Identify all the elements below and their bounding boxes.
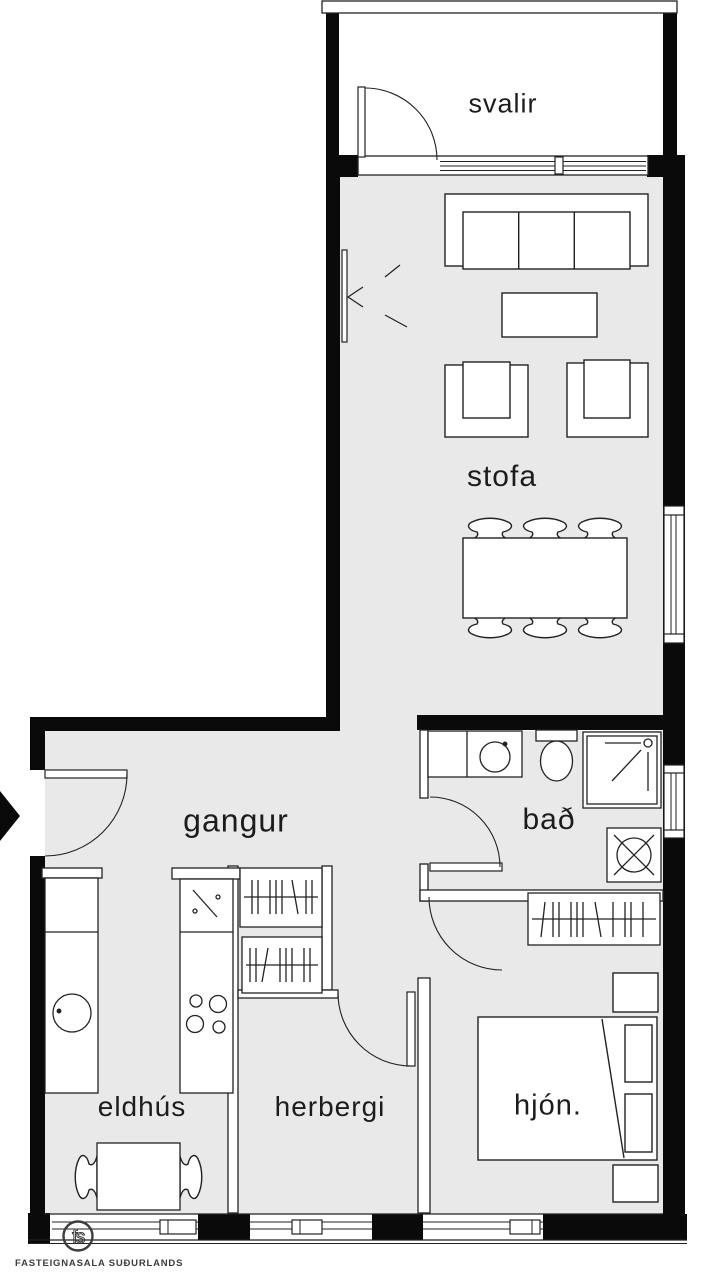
vanity-sink-icon	[428, 731, 522, 777]
hall-top-wall	[30, 717, 340, 731]
coffee-table-icon	[502, 293, 597, 337]
room-label-hjon: hjón.	[514, 1090, 582, 1123]
south-wall-seg2	[372, 1214, 423, 1240]
balcony-wall-left	[326, 13, 339, 155]
corner-block-right	[647, 155, 685, 177]
kitchen-counter-west-icon	[42, 868, 102, 1093]
room-label-bad: bað	[522, 803, 575, 837]
window-vent	[160, 1220, 196, 1234]
balcony-wall-right	[663, 13, 677, 155]
window-vent	[292, 1220, 322, 1234]
entry-arrow-icon	[0, 791, 20, 841]
double-bed-icon	[478, 1017, 657, 1160]
south-wall-seg1	[198, 1214, 250, 1240]
brand-logo: fs	[64, 1222, 93, 1251]
logo-monogram: fs	[72, 1227, 85, 1248]
wardrobe-icon-a	[240, 868, 322, 927]
room-label-svalir: svalir	[468, 89, 537, 120]
partition-bath-left	[420, 730, 428, 798]
dining-table	[463, 538, 627, 618]
pillow	[625, 1025, 652, 1082]
room-label-herbergi: herbergi	[275, 1091, 386, 1123]
window-vent	[510, 1220, 540, 1234]
balcony-floor	[339, 13, 663, 156]
armchair-right-icon	[567, 360, 648, 437]
room-label-eldhus: eldhús	[98, 1091, 187, 1123]
room-label-gangur: gangur	[183, 803, 289, 840]
nightstand-icon	[613, 973, 658, 1012]
entry-wall-upper	[30, 731, 45, 770]
corner-sw	[28, 1213, 50, 1243]
south-wall-seg3	[543, 1214, 687, 1240]
pillow	[625, 1094, 652, 1152]
west-wall-stofa	[326, 155, 340, 731]
floor-plan: fs svalir stofa gangur bað eldhús herber…	[0, 0, 722, 1280]
balcony-railing	[322, 1, 677, 13]
floor-plan-drawing: fs	[0, 0, 722, 1280]
corner-block-left	[339, 155, 358, 177]
bath-top-wall	[417, 715, 664, 730]
window-mullion	[555, 157, 563, 174]
shower-icon	[583, 732, 661, 808]
armchair-left-icon	[445, 362, 528, 437]
partition-room-bedroom	[418, 978, 430, 1213]
brand-name: FASTEIGNASALA SUÐURLANDS	[15, 1258, 183, 1269]
room-label-stofa: stofa	[467, 460, 537, 494]
kitchen-island-icon	[172, 868, 240, 1093]
wardrobe-icon-b	[242, 937, 322, 993]
west-wall-lower	[30, 856, 45, 1243]
wardrobe-icon-bedroom	[528, 893, 660, 945]
washing-machine-icon	[607, 828, 661, 882]
dining-set-icon	[463, 518, 627, 638]
sofa-icon	[445, 194, 648, 269]
partition-wardrobe-hall	[322, 866, 332, 990]
bath-east-window	[664, 765, 684, 838]
east-wall	[663, 177, 685, 1240]
stofa-east-window	[664, 506, 684, 643]
nightstand-icon	[613, 1165, 658, 1202]
